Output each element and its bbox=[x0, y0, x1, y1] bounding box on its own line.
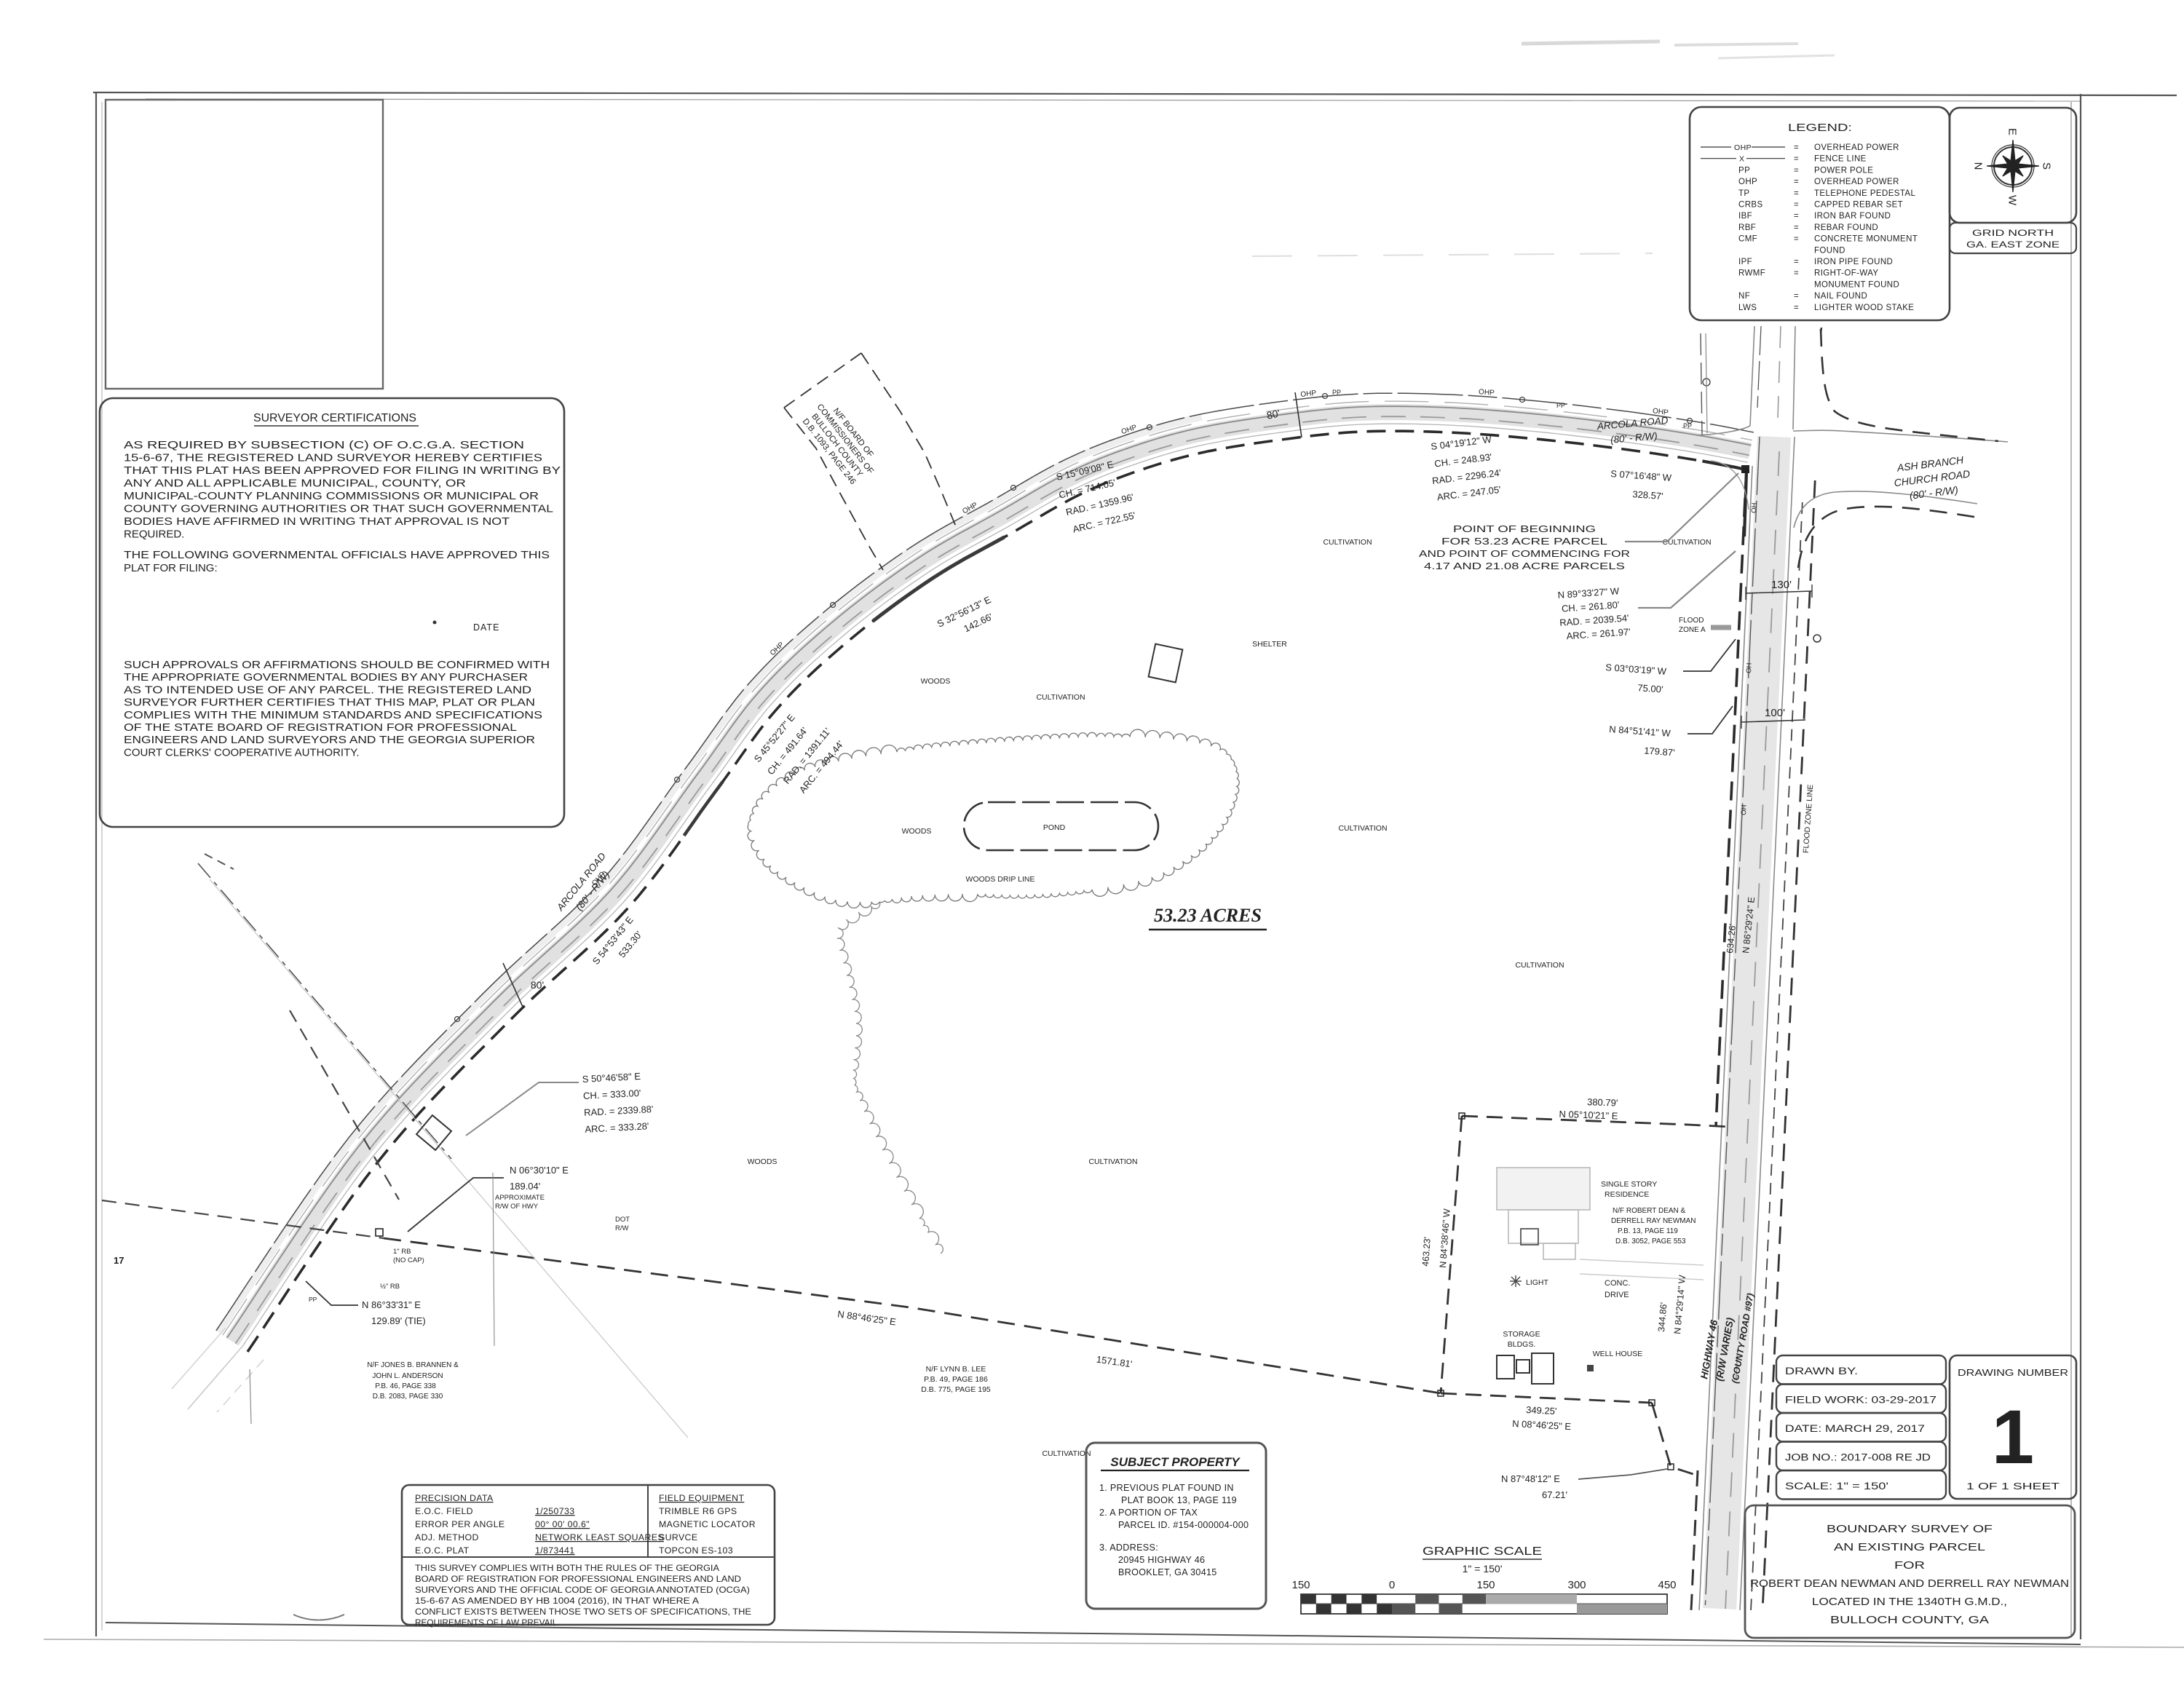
svg-text:WOODS: WOODS bbox=[748, 1157, 778, 1166]
svg-text:PP: PP bbox=[309, 1296, 317, 1303]
svg-text:REQUIRED.: REQUIRED. bbox=[124, 528, 184, 541]
svg-text:DOT: DOT bbox=[615, 1216, 630, 1224]
svg-text:1" RB: 1" RB bbox=[393, 1248, 411, 1256]
svg-text:CULTIVATION: CULTIVATION bbox=[1338, 824, 1387, 833]
svg-text:X: X bbox=[1739, 155, 1744, 164]
svg-text:OH: OH bbox=[1745, 662, 1754, 673]
svg-text:=: = bbox=[1794, 166, 1799, 175]
svg-text:AN EXISTING PARCEL: AN EXISTING PARCEL bbox=[1834, 1541, 1985, 1553]
svg-text:MONUMENT FOUND: MONUMENT FOUND bbox=[1814, 280, 1899, 289]
svg-text:THE APPROPRIATE GOVERNMENTAL B: THE APPROPRIATE GOVERNMENTAL BODIES BY A… bbox=[124, 671, 528, 684]
svg-text:1: 1 bbox=[1992, 1395, 2034, 1480]
svg-text:RWMF: RWMF bbox=[1738, 269, 1765, 278]
svg-text:BOUNDARY SURVEY OF: BOUNDARY SURVEY OF bbox=[1827, 1523, 1993, 1535]
svg-text:APPROXIMATE: APPROXIMATE bbox=[495, 1194, 545, 1202]
svg-text:GRAPHIC SCALE: GRAPHIC SCALE bbox=[1423, 1545, 1542, 1558]
svg-text:JOB NO.: 2017-008 RE JD: JOB NO.: 2017-008 RE JD bbox=[1785, 1452, 1931, 1463]
svg-text:CMF: CMF bbox=[1738, 235, 1757, 244]
svg-text:SHELTER: SHELTER bbox=[1252, 640, 1287, 649]
svg-text:R/W: R/W bbox=[615, 1224, 629, 1232]
svg-text:=: = bbox=[1794, 201, 1799, 210]
svg-text:FENCE LINE: FENCE LINE bbox=[1814, 155, 1867, 164]
svg-text:=: = bbox=[1794, 189, 1799, 198]
svg-text:N/F LYNN B. LEE: N/F LYNN B. LEE bbox=[926, 1365, 986, 1374]
svg-text:TELEPHONE PEDESTAL: TELEPHONE PEDESTAL bbox=[1814, 189, 1915, 198]
svg-text:LWS: LWS bbox=[1738, 304, 1757, 312]
svg-text:OHP: OHP bbox=[1479, 388, 1495, 397]
svg-text:OVERHEAD POWER: OVERHEAD POWER bbox=[1814, 178, 1899, 186]
svg-text:IRON BAR FOUND: IRON BAR FOUND bbox=[1814, 212, 1891, 221]
svg-text:TRIMBLE R6 GPS: TRIMBLE R6 GPS bbox=[659, 1506, 737, 1516]
svg-text:OH: OH bbox=[1750, 502, 1759, 513]
svg-text:LOCATED IN THE 1340TH G.M.D.,: LOCATED IN THE 1340TH G.M.D., bbox=[1812, 1596, 2007, 1608]
svg-text:=: = bbox=[1794, 304, 1799, 312]
svg-text:SURVEYOR FURTHER CERTIFIES THA: SURVEYOR FURTHER CERTIFIES THAT THIS MAP… bbox=[124, 697, 535, 709]
svg-text:0: 0 bbox=[1389, 1579, 1395, 1591]
svg-text:ENGINEERS AND LAND SURVEYORS A: ENGINEERS AND LAND SURVEYORS AND THE GEO… bbox=[124, 734, 535, 746]
svg-text:3. ADDRESS:: 3. ADDRESS: bbox=[1099, 1543, 1158, 1553]
svg-text:CONC.: CONC. bbox=[1605, 1279, 1630, 1288]
svg-text:N 86°33'31" E: N 86°33'31" E bbox=[362, 1299, 421, 1310]
svg-text:=: = bbox=[1794, 292, 1799, 301]
svg-text:DRAWN BY.: DRAWN BY. bbox=[1785, 1366, 1858, 1377]
svg-text:PP: PP bbox=[1738, 166, 1750, 175]
svg-text:=: = bbox=[1794, 223, 1799, 232]
svg-text:COUNTY GOVERNING AUTHORITIES O: COUNTY GOVERNING AUTHORITIES OR THAT SUC… bbox=[124, 503, 553, 515]
svg-text:DRAWING NUMBER: DRAWING NUMBER bbox=[1958, 1367, 2068, 1378]
svg-text:CONFLICT EXISTS BETWEEN THOSE: CONFLICT EXISTS BETWEEN THOSE TWO SETS O… bbox=[415, 1607, 751, 1617]
svg-text:IRON PIPE FOUND: IRON PIPE FOUND bbox=[1814, 258, 1893, 266]
svg-text:=: = bbox=[1794, 258, 1799, 266]
svg-text:PLAT BOOK 13, PAGE 119: PLAT BOOK 13, PAGE 119 bbox=[1121, 1495, 1237, 1505]
svg-text:OHP: OHP bbox=[1734, 143, 1752, 152]
svg-text:CULTIVATION: CULTIVATION bbox=[1042, 1449, 1091, 1458]
svg-text:PP: PP bbox=[1556, 402, 1565, 409]
svg-text:OH: OH bbox=[1740, 804, 1749, 815]
svg-text:BODIES HAVE AFFIRMED IN WRITIN: BODIES HAVE AFFIRMED IN WRITING THAT APP… bbox=[124, 515, 510, 528]
svg-text:THIS SURVEY COMPLIES WITH BOTH: THIS SURVEY COMPLIES WITH BOTH THE RULES… bbox=[415, 1563, 719, 1573]
svg-text:P.B. 13, PAGE 119: P.B. 13, PAGE 119 bbox=[1618, 1227, 1678, 1235]
svg-text:POWER POLE: POWER POLE bbox=[1814, 166, 1873, 175]
svg-text:=: = bbox=[1794, 178, 1799, 186]
svg-text:WOODS DRIP LINE: WOODS DRIP LINE bbox=[966, 875, 1035, 884]
svg-text:SUBJECT PROPERTY: SUBJECT PROPERTY bbox=[1110, 1455, 1241, 1469]
svg-text:N: N bbox=[1972, 162, 1985, 170]
svg-text:(NO CAP): (NO CAP) bbox=[393, 1256, 424, 1264]
svg-text:349.25': 349.25' bbox=[1526, 1404, 1557, 1417]
svg-text:CULTIVATION: CULTIVATION bbox=[1515, 961, 1564, 970]
svg-text:179.87': 179.87' bbox=[1644, 745, 1675, 758]
svg-text:ERROR PER ANGLE: ERROR PER ANGLE bbox=[415, 1519, 505, 1529]
svg-text:75.00': 75.00' bbox=[1637, 682, 1663, 694]
svg-text:WOODS: WOODS bbox=[902, 827, 932, 836]
svg-text:130': 130' bbox=[1771, 579, 1792, 591]
svg-text:1" = 150': 1" = 150' bbox=[1463, 1563, 1503, 1575]
svg-text:½" RB: ½" RB bbox=[380, 1283, 400, 1291]
svg-text:FIELD WORK: 03-29-2017: FIELD WORK: 03-29-2017 bbox=[1785, 1395, 1936, 1406]
svg-text:COURT CLERKS' COOPERATIVE AUTH: COURT CLERKS' COOPERATIVE AUTHORITY. bbox=[124, 746, 360, 759]
svg-text:00° 00' 00.6": 00° 00' 00.6" bbox=[535, 1519, 590, 1529]
svg-text:BROOKLET, GA 30415: BROOKLET, GA 30415 bbox=[1118, 1567, 1217, 1577]
svg-text:OF THE STATE BOARD OF REGISTRA: OF THE STATE BOARD OF REGISTRATION FOR P… bbox=[124, 721, 517, 734]
svg-text:DATE: DATE bbox=[473, 622, 499, 633]
svg-text:E.O.C. FIELD: E.O.C. FIELD bbox=[415, 1506, 473, 1516]
svg-text:ZONE A: ZONE A bbox=[1679, 626, 1706, 634]
svg-text:DERRELL RAY NEWMAN: DERRELL RAY NEWMAN bbox=[1611, 1217, 1696, 1225]
svg-text:MUNICIPAL-COUNTY PLANNING COMM: MUNICIPAL-COUNTY PLANNING COMMISSIONS OR… bbox=[124, 490, 539, 502]
svg-text:15-6-67, THE REGISTERED LAND S: 15-6-67, THE REGISTERED LAND SURVEYOR HE… bbox=[124, 452, 542, 464]
svg-text:JOHN L. ANDERSON: JOHN L. ANDERSON bbox=[372, 1372, 443, 1380]
svg-text:2. A PORTION OF TAX: 2. A PORTION OF TAX bbox=[1099, 1508, 1198, 1518]
svg-text:N 06°30'10" E: N 06°30'10" E bbox=[510, 1165, 569, 1176]
svg-text:150: 150 bbox=[1291, 1579, 1310, 1591]
svg-text:CULTIVATION: CULTIVATION bbox=[1088, 1157, 1137, 1166]
svg-text:THE FOLLOWING GOVERNMENTAL OFF: THE FOLLOWING GOVERNMENTAL OFFICIALS HAV… bbox=[124, 549, 550, 561]
svg-text:100': 100' bbox=[1765, 707, 1785, 719]
svg-text:=: = bbox=[1794, 143, 1799, 152]
svg-text:CONCRETE MONUMENT: CONCRETE MONUMENT bbox=[1814, 235, 1918, 244]
svg-text:=: = bbox=[1794, 212, 1799, 221]
svg-text:E.O.C. PLAT: E.O.C. PLAT bbox=[415, 1545, 470, 1556]
svg-text:NETWORK LEAST SQUARES: NETWORK LEAST SQUARES bbox=[535, 1532, 664, 1543]
svg-text:SURVCE: SURVCE bbox=[659, 1532, 697, 1543]
svg-text:RESIDENCE: RESIDENCE bbox=[1605, 1190, 1649, 1199]
svg-text:CULTIVATION: CULTIVATION bbox=[1036, 693, 1085, 702]
svg-text:THAT THIS PLAT HAS BEEN APPROV: THAT THIS PLAT HAS BEEN APPROVED FOR FIL… bbox=[124, 464, 561, 477]
svg-text:LEGEND:: LEGEND: bbox=[1788, 122, 1852, 134]
svg-text:GA. EAST ZONE: GA. EAST ZONE bbox=[1966, 239, 2060, 250]
svg-text:IBF: IBF bbox=[1738, 212, 1752, 221]
svg-text:CULTIVATION: CULTIVATION bbox=[1323, 538, 1372, 547]
svg-text:BLDGS.: BLDGS. bbox=[1508, 1340, 1536, 1349]
svg-text:129.89' (TIE): 129.89' (TIE) bbox=[371, 1315, 426, 1326]
svg-text:17: 17 bbox=[114, 1255, 124, 1266]
svg-text:=: = bbox=[1794, 269, 1799, 278]
svg-text:COMPLIES WITH THE MINIMUM STAN: COMPLIES WITH THE MINIMUM STANDARDS AND … bbox=[124, 709, 542, 721]
svg-text:PRECISION DATA: PRECISION DATA bbox=[415, 1493, 494, 1503]
svg-text:300: 300 bbox=[1567, 1579, 1586, 1591]
svg-text:PP: PP bbox=[1683, 422, 1692, 429]
svg-text:189.04': 189.04' bbox=[510, 1181, 540, 1192]
svg-text:S: S bbox=[2041, 162, 2053, 170]
svg-text:NAIL FOUND: NAIL FOUND bbox=[1814, 292, 1867, 301]
svg-text:P.B. 46, PAGE 338: P.B. 46, PAGE 338 bbox=[375, 1382, 436, 1390]
svg-text:=: = bbox=[1794, 235, 1799, 244]
svg-text:OHP: OHP bbox=[1738, 178, 1757, 186]
svg-text:N/F JONES B. BRANNEN &: N/F JONES B. BRANNEN & bbox=[367, 1361, 459, 1369]
svg-text:P.B. 49, PAGE 186: P.B. 49, PAGE 186 bbox=[924, 1375, 988, 1384]
svg-text:REBAR FOUND: REBAR FOUND bbox=[1814, 223, 1878, 232]
svg-text:450: 450 bbox=[1658, 1579, 1676, 1591]
svg-text:LIGHTER WOOD STAKE: LIGHTER WOOD STAKE bbox=[1814, 304, 1914, 312]
svg-text:ANY AND ALL APPLICABLE MUNICIP: ANY AND ALL APPLICABLE MUNICIPAL, COUNTY… bbox=[124, 478, 466, 490]
svg-text:SINGLE STORY: SINGLE STORY bbox=[1601, 1180, 1657, 1189]
svg-text:POND: POND bbox=[1043, 823, 1066, 832]
svg-text:R/W OF HWY: R/W OF HWY bbox=[495, 1203, 539, 1211]
svg-text:OVERHEAD POWER: OVERHEAD POWER bbox=[1814, 143, 1899, 152]
svg-text:FOR 53.23 ACRE PARCEL: FOR 53.23 ACRE PARCEL bbox=[1441, 536, 1607, 547]
svg-text:SURVEYOR CERTIFICATIONS: SURVEYOR CERTIFICATIONS bbox=[253, 412, 416, 424]
svg-text:SURVEYORS AND THE OFFICIAL COD: SURVEYORS AND THE OFFICIAL CODE OF GEORG… bbox=[415, 1585, 750, 1595]
svg-text:1/250733: 1/250733 bbox=[535, 1506, 575, 1516]
svg-text:TOPCON ES-103: TOPCON ES-103 bbox=[659, 1545, 733, 1556]
svg-text:OHP: OHP bbox=[1300, 389, 1317, 399]
svg-text:328.57': 328.57' bbox=[1632, 488, 1663, 502]
svg-text:DATE: MARCH 29, 2017: DATE: MARCH 29, 2017 bbox=[1785, 1423, 1925, 1434]
svg-text:N/F ROBERT DEAN &: N/F ROBERT DEAN & bbox=[1613, 1207, 1686, 1215]
svg-text:D.B. 3052, PAGE 553: D.B. 3052, PAGE 553 bbox=[1615, 1237, 1686, 1246]
svg-text:N 05°10'21" E: N 05°10'21" E bbox=[1559, 1109, 1618, 1122]
svg-text:REQUIREMENTS OF LAW PREVAIL.: REQUIREMENTS OF LAW PREVAIL. bbox=[415, 1617, 560, 1628]
svg-text:TP: TP bbox=[1738, 189, 1750, 198]
svg-text:MAGNETIC LOCATOR: MAGNETIC LOCATOR bbox=[659, 1519, 756, 1529]
svg-text:WELL HOUSE: WELL HOUSE bbox=[1593, 1350, 1642, 1358]
svg-text:AS REQUIRED BY SUBSECTION (C): AS REQUIRED BY SUBSECTION (C) OF O.C.G.A… bbox=[124, 439, 524, 451]
svg-text:D.B. 775, PAGE 195: D.B. 775, PAGE 195 bbox=[921, 1385, 991, 1394]
svg-text:RBF: RBF bbox=[1738, 223, 1756, 232]
svg-text:380.79': 380.79' bbox=[1587, 1096, 1618, 1108]
svg-text:AS TO INTENDED USE OF ANY PARC: AS TO INTENDED USE OF ANY PARCEL. THE RE… bbox=[124, 684, 531, 696]
svg-text:FOUND: FOUND bbox=[1814, 246, 1845, 255]
svg-text:SCALE: 1" = 150': SCALE: 1" = 150' bbox=[1785, 1481, 1888, 1492]
svg-text:15-6-67 AS AMENDED BY HB 1004: 15-6-67 AS AMENDED BY HB 1004 (2016), IN… bbox=[415, 1596, 699, 1606]
svg-text:BOARD OF REGISTRATION FOR PROF: BOARD OF REGISTRATION FOR PROFESSIONAL E… bbox=[415, 1574, 741, 1584]
svg-text:PP: PP bbox=[1332, 389, 1341, 396]
svg-text:=: = bbox=[1794, 155, 1799, 164]
svg-text:GRID NORTH: GRID NORTH bbox=[1972, 228, 2054, 238]
svg-text:FIELD EQUIPMENT: FIELD EQUIPMENT bbox=[659, 1493, 744, 1503]
svg-text:RIGHT-OF-WAY: RIGHT-OF-WAY bbox=[1814, 269, 1878, 278]
svg-text:STORAGE: STORAGE bbox=[1503, 1330, 1540, 1339]
svg-text:AND POINT OF COMMENCING FOR: AND POINT OF COMMENCING FOR bbox=[1419, 548, 1630, 559]
svg-text:1/873441: 1/873441 bbox=[535, 1545, 575, 1556]
svg-text:ADJ. METHOD: ADJ. METHOD bbox=[415, 1532, 479, 1543]
svg-text:67.21': 67.21' bbox=[1542, 1489, 1567, 1500]
svg-text:N 87°48'12" E: N 87°48'12" E bbox=[1501, 1473, 1560, 1484]
svg-text:CRBS: CRBS bbox=[1738, 201, 1763, 210]
svg-text:53.23 ACRES: 53.23 ACRES bbox=[1154, 905, 1262, 926]
svg-text:BULLOCH COUNTY, GA: BULLOCH COUNTY, GA bbox=[1830, 1614, 1989, 1626]
svg-text:SUCH APPROVALS OR AFFIRMATIONS: SUCH APPROVALS OR AFFIRMATIONS SHOULD BE… bbox=[124, 659, 550, 671]
svg-text:PARCEL ID. #154-000004-000: PARCEL ID. #154-000004-000 bbox=[1118, 1520, 1249, 1530]
svg-text:LIGHT: LIGHT bbox=[1526, 1278, 1549, 1287]
svg-text:PLAT FOR FILING:: PLAT FOR FILING: bbox=[124, 562, 218, 574]
svg-text:ROBERT DEAN NEWMAN AND DERRELL: ROBERT DEAN NEWMAN AND DERRELL RAY NEWMA… bbox=[1750, 1577, 2069, 1590]
svg-text:E: E bbox=[2006, 128, 2019, 135]
svg-text:DRIVE: DRIVE bbox=[1605, 1291, 1629, 1299]
svg-text:1 OF 1 SHEET: 1 OF 1 SHEET bbox=[1966, 1481, 2060, 1492]
svg-text:W: W bbox=[2006, 195, 2019, 206]
svg-text:20945 HIGHWAY 46: 20945 HIGHWAY 46 bbox=[1118, 1555, 1205, 1565]
svg-text:80': 80' bbox=[531, 979, 544, 991]
svg-text:4.17 AND 21.08 ACRE PARCELS: 4.17 AND 21.08 ACRE PARCELS bbox=[1424, 561, 1625, 571]
svg-text:NF: NF bbox=[1738, 292, 1750, 301]
svg-text:FOR: FOR bbox=[1894, 1559, 1925, 1572]
svg-text:POINT OF BEGINNING: POINT OF BEGINNING bbox=[1453, 523, 1596, 534]
svg-text:IPF: IPF bbox=[1738, 258, 1752, 266]
svg-text:FLOOD: FLOOD bbox=[1679, 617, 1704, 625]
svg-text:D.B. 2083, PAGE 330: D.B. 2083, PAGE 330 bbox=[373, 1393, 443, 1401]
svg-text:1. PREVIOUS PLAT FOUND IN: 1. PREVIOUS PLAT FOUND IN bbox=[1099, 1483, 1234, 1493]
svg-text:463.23': 463.23' bbox=[1420, 1237, 1433, 1267]
svg-text:CAPPED REBAR SET: CAPPED REBAR SET bbox=[1814, 201, 1903, 210]
svg-text:150: 150 bbox=[1476, 1579, 1495, 1591]
svg-text:WOODS: WOODS bbox=[921, 677, 951, 686]
